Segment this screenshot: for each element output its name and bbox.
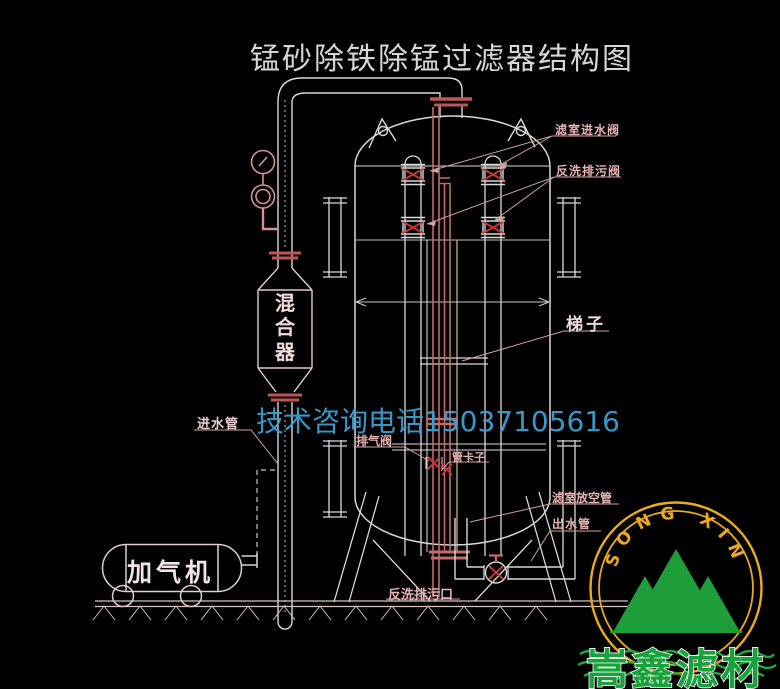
label-aerator: 加气机: [127, 553, 214, 589]
page-title: 锰砂除铁除锰过滤器结构图: [240, 34, 644, 78]
inlet-branch-dashed: [257, 470, 278, 556]
label-filter-inlet-valve: 滤室进水阀: [555, 121, 620, 138]
lifting-lug-left: [369, 119, 396, 148]
label-backwash-drain-port: 反洗排污口: [388, 584, 453, 603]
gauge-needle: [259, 157, 267, 166]
stub-lower-left: [323, 440, 347, 517]
pressure-gauge-assembly: [252, 151, 279, 230]
leader-outlet-pipe: [531, 531, 601, 561]
label-mixer: 混合器: [273, 291, 297, 364]
leader-backwash-valve: [427, 177, 621, 224]
label-ladder: 梯子: [566, 310, 606, 335]
internal-pipes: [405, 156, 501, 556]
leader-ladder: [462, 331, 609, 361]
left-pipe-assembly: [278, 78, 462, 629]
red-riser-pipes: [426, 107, 470, 597]
internal-pipe-left: [405, 164, 421, 556]
aerator-outlet-stub: [242, 553, 258, 568]
ground-line: [95, 601, 628, 607]
central-sleeve-pipe: [427, 240, 457, 552]
lifting-lug-right: [508, 119, 535, 147]
pipe-bottom-cap: [278, 622, 292, 629]
stub-lower-right: [557, 440, 581, 579]
sand-level-line: [356, 298, 549, 306]
tank-shell: [355, 116, 550, 545]
side-stubs: [323, 197, 581, 579]
label-inlet-pipe: 进水管: [197, 413, 239, 432]
watermark-phone-text: 技术咨询电话15037105616: [256, 400, 620, 440]
logo-mountains: [610, 549, 742, 633]
tank-bottom-dish: [355, 497, 550, 545]
cad-diagram-screenshot: SONG XIN 嵩鑫滤材 锰砂除铁除锰过滤器结构图 滤室进水阀 反洗排污阀 梯…: [0, 0, 780, 689]
label-pipe-clamp: 管卡子: [452, 449, 485, 465]
label-backwash-drain-valve: 反洗排污阀: [556, 162, 621, 179]
bottom-tee-flange: [429, 552, 470, 558]
internal-pipe-right: [485, 164, 501, 556]
leader-exhaust-valve: [354, 447, 429, 461]
stub-upper-left: [323, 197, 347, 277]
top-nozzle: [430, 99, 472, 118]
stub-upper-right: [557, 197, 581, 277]
label-outlet-pipe: 出水管: [552, 515, 591, 532]
sample-valve-icon: [252, 185, 275, 208]
lifting-lugs: [369, 119, 535, 148]
label-chamber-vent-pipe: 滤室放空管: [552, 489, 612, 506]
ground-hatch: [93, 606, 547, 620]
outlet-run: [508, 567, 575, 579]
company-logo: SONG XIN 嵩鑫滤材: [578, 503, 776, 689]
logo-company-text: 嵩鑫滤材: [586, 645, 766, 689]
ladder-rung: [420, 358, 488, 364]
